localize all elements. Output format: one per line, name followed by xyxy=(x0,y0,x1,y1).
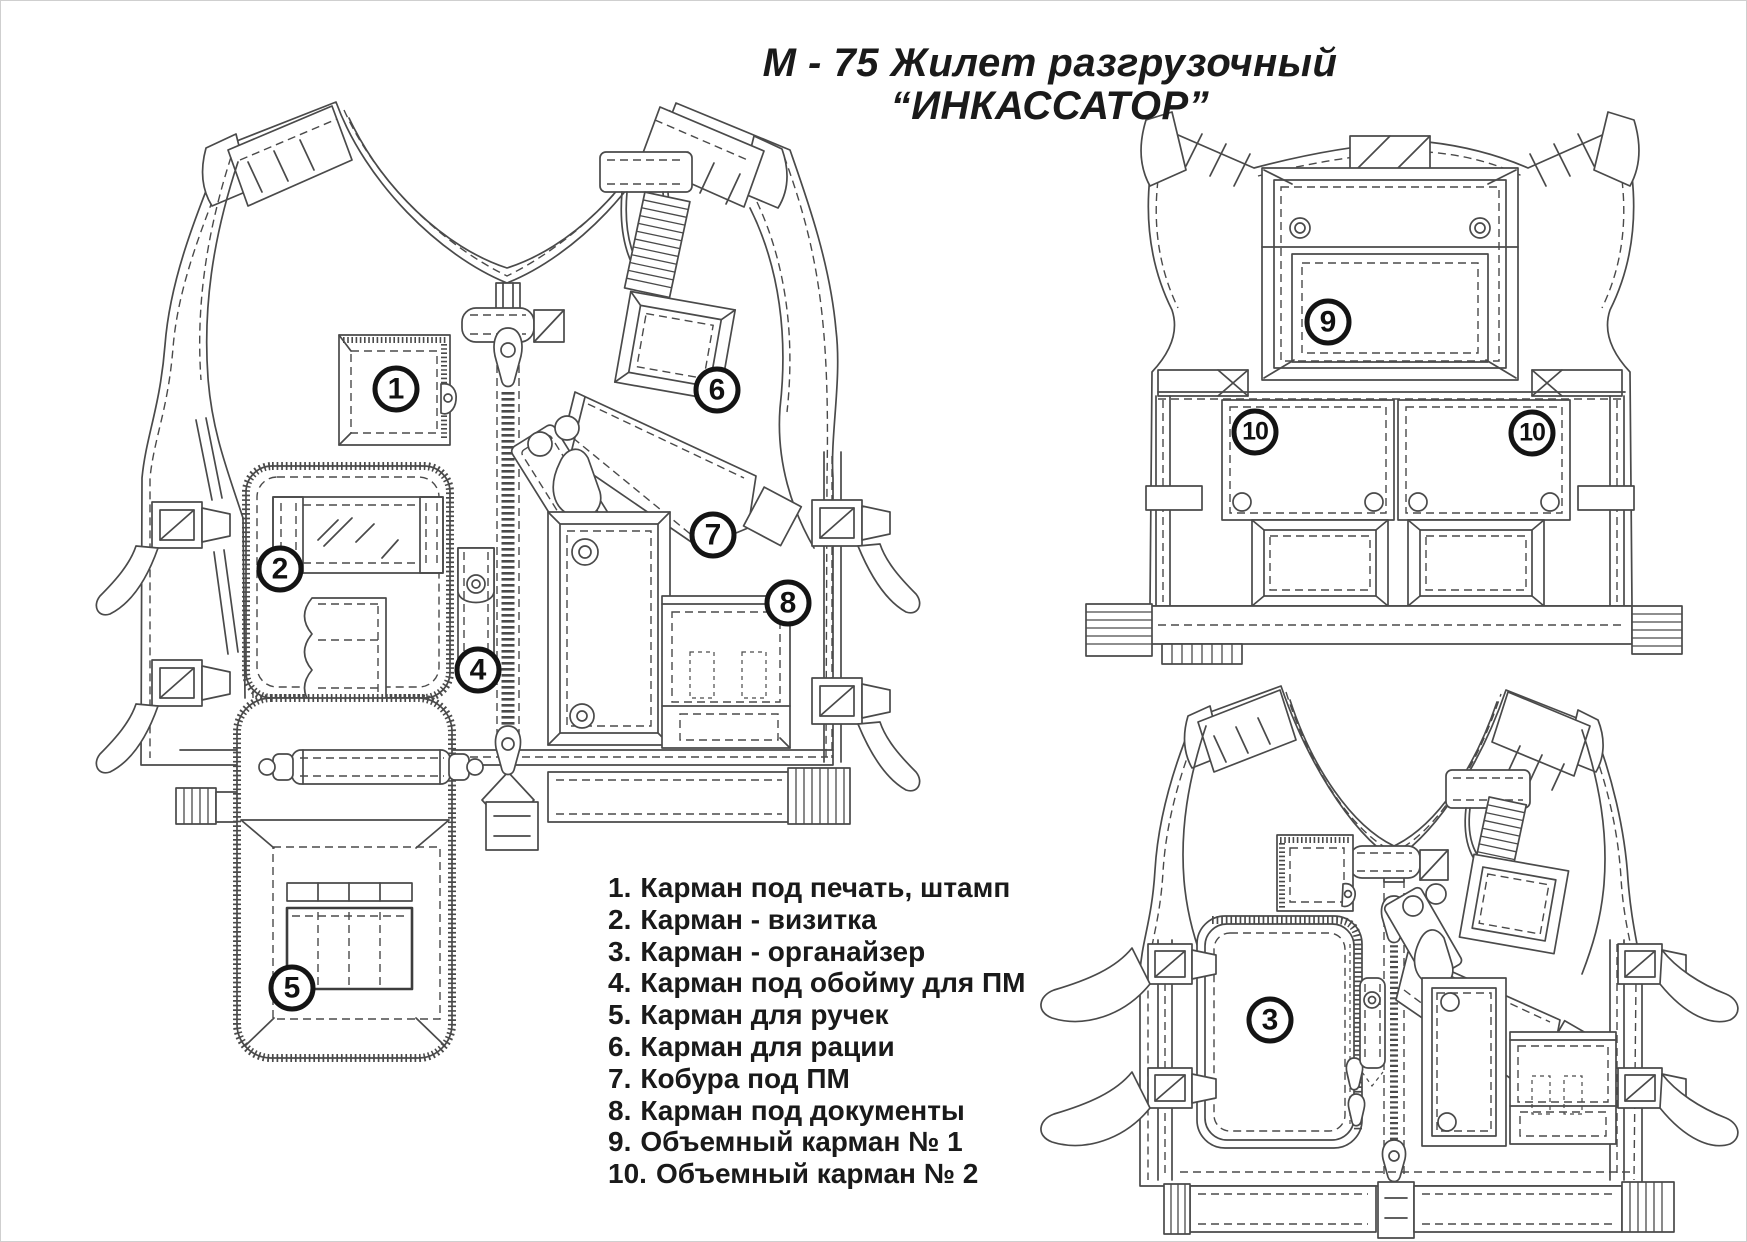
page: М - 75 Жилет разгрузочный “ИНКАССАТОР” 1… xyxy=(0,0,1747,1242)
legend-item-number: 8. xyxy=(608,1095,631,1127)
legend-item: 3.Карман - органайзер xyxy=(608,936,1025,968)
legend-item: 2.Карман - визитка xyxy=(608,904,1025,936)
legend-item-number: 2. xyxy=(608,904,631,936)
legend-item: 5.Карман для ручек xyxy=(608,999,1025,1031)
closed-small-pocket xyxy=(1277,835,1355,911)
grommet-pocket xyxy=(548,512,670,745)
closed-grommet-pocket xyxy=(1422,978,1506,1146)
closed-documents-pocket xyxy=(1510,1032,1616,1144)
legend-item-number: 1. xyxy=(608,872,631,904)
legend-item-number: 4. xyxy=(608,967,631,999)
legend-item: 9.Объемный карман № 1 xyxy=(608,1126,1025,1158)
title-line-2: “ИНКАССАТОР” xyxy=(730,85,1370,128)
legend-item-label: Карман под обойму для ПМ xyxy=(640,967,1025,998)
legend-item: 8.Карман под документы xyxy=(608,1095,1025,1127)
legend-item: 4.Карман под обойму для ПМ xyxy=(608,967,1025,999)
documents-pocket xyxy=(662,596,790,748)
pen-pocket-hanger xyxy=(259,750,483,784)
legend-item-label: Кобура под ПМ xyxy=(640,1063,849,1094)
vest-back-view xyxy=(1086,112,1682,664)
legend-item: 10.Объемный карман № 2 xyxy=(608,1158,1025,1190)
legend-item-number: 7. xyxy=(608,1063,631,1095)
legend-item-label: Карман для рации xyxy=(640,1031,894,1062)
legend-item-label: Карман под документы xyxy=(640,1095,964,1126)
legend-item-label: Объемный карман № 2 xyxy=(656,1158,978,1189)
legend-item-number: 5. xyxy=(608,999,631,1031)
legend-item-number: 9. xyxy=(608,1126,631,1158)
back-hem-belt xyxy=(1086,604,1682,664)
legend-item-label: Объемный карман № 1 xyxy=(640,1126,962,1157)
legend-item-label: Карман - визитка xyxy=(640,904,876,935)
title-line-1: М - 75 Жилет разгрузочный xyxy=(730,42,1370,85)
legend-item-label: Карман для ручек xyxy=(640,999,888,1030)
legend-item-number: 6. xyxy=(608,1031,631,1063)
volume-pocket-1 xyxy=(1262,168,1518,380)
page-title: М - 75 Жилет разгрузочный “ИНКАССАТОР” xyxy=(730,42,1370,128)
legend: 1.Карман под печать, штамп 2.Карман - ви… xyxy=(608,872,1025,1190)
pocket-organizer xyxy=(1197,916,1365,1148)
legend-item: 1.Карман под печать, штамп xyxy=(608,872,1025,904)
legend-item: 6.Карман для рации xyxy=(608,1031,1025,1063)
vest-front-closed-view xyxy=(1041,686,1738,1238)
pm-magazine-strap xyxy=(458,548,494,674)
legend-item: 7.Кобура под ПМ xyxy=(608,1063,1025,1095)
legend-item-label: Карман - органайзер xyxy=(640,936,925,967)
legend-item-label: Карман под печать, штамп xyxy=(640,872,1010,903)
legend-item-number: 10. xyxy=(608,1158,647,1190)
pocket-seal-stamp xyxy=(339,335,456,445)
legend-item-number: 3. xyxy=(608,936,631,968)
